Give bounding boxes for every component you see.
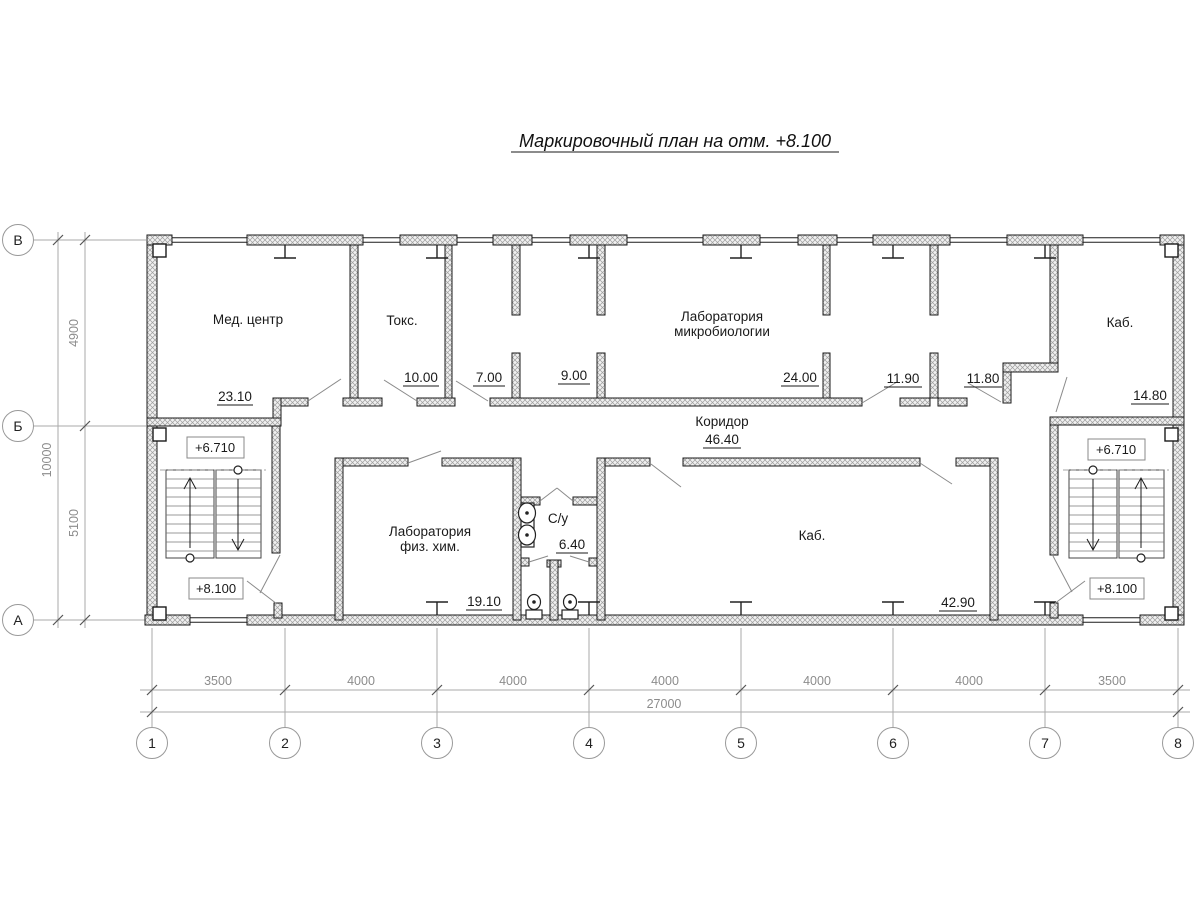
stairwell-left-door-stub <box>274 603 282 618</box>
elevation-value: +6.710 <box>1096 442 1136 457</box>
sink-icon <box>519 525 536 545</box>
exterior-walls <box>145 235 1184 625</box>
room-label-su: С/у <box>548 511 569 526</box>
dim-bay-3: 4000 <box>499 674 527 688</box>
wall-jog-horizontal <box>1003 363 1058 372</box>
room-label-toks: Токс. <box>386 313 417 328</box>
stairwell-right-door-stub <box>1050 603 1058 618</box>
room-label-med-center: Мед. центр <box>213 312 283 327</box>
axis-bubble-1: 1 <box>137 728 168 759</box>
corridor-south-wall <box>335 458 997 466</box>
wall-room7-room9 <box>512 353 520 398</box>
sink-icon <box>519 503 536 523</box>
room-area-11-80: 11.80 <box>967 371 1000 386</box>
axis-label-b: Б <box>13 418 22 434</box>
wall-jog-vertical <box>1003 372 1011 403</box>
stair-landing-node <box>1137 554 1145 562</box>
dim-bay-6: 4000 <box>955 674 983 688</box>
dim-vertical-total: 10000 <box>40 443 54 478</box>
room-area-kab-bottom: 42.90 <box>941 595 975 610</box>
axis-label-6: 6 <box>889 735 897 751</box>
axis-bubble-7: 7 <box>1030 728 1061 759</box>
elevation-value: +8.100 <box>196 581 236 596</box>
axis-label-7: 7 <box>1041 735 1049 751</box>
room-label-kab-top: Каб. <box>1107 315 1134 330</box>
room-label-kab-bottom: Каб. <box>799 528 826 543</box>
corner-notch <box>153 607 166 620</box>
axis-label-2: 2 <box>281 735 289 751</box>
axis-bubble-v: В <box>3 225 34 256</box>
plan-title-text: Маркировочный план на отм. +8.100 <box>519 131 831 151</box>
stairwell-right-west-wall <box>1050 425 1058 555</box>
room-area-lab-fizhim: 19.10 <box>467 594 501 609</box>
axis-label-5: 5 <box>737 735 745 751</box>
column-marks <box>274 245 1056 615</box>
axis-bubble-5: 5 <box>726 728 757 759</box>
corner-notch <box>1165 607 1178 620</box>
elevation-mark-right-upper: +6.710 <box>1088 439 1145 460</box>
door-swings <box>247 377 1085 604</box>
room-area-lab-micro: 24.00 <box>783 370 817 385</box>
room-label-lab-micro-1: Лаборатория <box>681 309 763 324</box>
axis-bubble-4: 4 <box>574 728 605 759</box>
stair-landing-node <box>186 554 194 562</box>
axis-label-v: В <box>13 232 22 248</box>
room-label-lab-fizhim-2: физ. хим. <box>400 539 460 554</box>
wall-toks-room7 <box>445 245 452 398</box>
axis-bubble-8: 8 <box>1163 728 1194 759</box>
row-axes: В Б А <box>3 225 147 636</box>
dim-vertical-4900: 4900 <box>67 319 81 347</box>
axis-label-8: 8 <box>1174 735 1182 751</box>
room-area-11-90: 11.90 <box>887 371 920 386</box>
axis-label-3: 3 <box>433 735 441 751</box>
dim-bay-7: 3500 <box>1098 674 1126 688</box>
elevation-value: +8.100 <box>1097 581 1137 596</box>
wall-1190-1180 <box>930 353 938 398</box>
room-area-kab-top: 14.80 <box>1133 388 1167 403</box>
stair-landing-node <box>1089 466 1097 474</box>
dim-bay-5: 4000 <box>803 674 831 688</box>
floor-plan-drawing: Маркировочный план на отм. +8.100 В Б А … <box>0 0 1200 900</box>
stairwell-left-north-wall <box>147 418 281 426</box>
wall-med-toks <box>350 245 358 398</box>
room-label-corridor: Коридор <box>695 414 748 429</box>
su-stall-stub-east <box>589 558 597 566</box>
axis-bubble-2: 2 <box>270 728 301 759</box>
wall-fizhim-west <box>335 458 343 620</box>
elevation-mark-left-lower: +8.100 <box>189 578 243 599</box>
wall-kab-top-west <box>1050 245 1058 372</box>
stair-landing-node <box>234 466 242 474</box>
room-area-toks: 10.00 <box>404 370 438 385</box>
stairwell-right-north-wall <box>1050 417 1184 425</box>
wall-room9-lab <box>597 353 605 398</box>
axis-bubble-3: 3 <box>422 728 453 759</box>
elevation-mark-left-upper: +6.710 <box>187 437 244 458</box>
room-area-7: 7.00 <box>476 370 502 385</box>
axis-label-4: 4 <box>585 735 593 751</box>
elevation-marks: +6.710 +8.100 +6.710 +8.100 <box>187 437 1145 599</box>
su-partition <box>550 560 558 620</box>
staircase-right <box>1063 466 1169 562</box>
dim-bay-4: 4000 <box>651 674 679 688</box>
axis-bubble-a: А <box>3 605 34 636</box>
room-area-su: 6.40 <box>559 537 585 552</box>
dim-bay-2: 4000 <box>347 674 375 688</box>
col-axes: 1 2 3 4 5 6 7 8 <box>137 728 1194 759</box>
wall-lab-1190 <box>823 353 830 398</box>
staircase-left <box>160 466 266 562</box>
room-label-lab-micro-2: микробиологии <box>674 324 770 339</box>
dim-vertical-5100: 5100 <box>67 509 81 537</box>
dim-bay-1: 3500 <box>204 674 232 688</box>
axis-label-1: 1 <box>148 735 156 751</box>
toilet-icon <box>562 595 578 620</box>
wall-kab-bottom-east <box>990 458 998 620</box>
axis-label-a: А <box>13 612 23 628</box>
dim-total-width: 27000 <box>647 697 682 711</box>
room-area-corridor: 46.40 <box>705 432 739 447</box>
corner-notch <box>153 244 166 257</box>
stairwell-left-east-wall <box>272 426 280 553</box>
corner-notch <box>153 428 166 441</box>
su-north-stub-east <box>573 497 597 505</box>
elevation-value: +6.710 <box>195 440 235 455</box>
wall-su-east <box>597 458 605 620</box>
toilet-icon <box>526 595 542 620</box>
corner-notch <box>1165 428 1178 441</box>
bottom-dimension-lines: 3500 4000 4000 4000 4000 4000 3500 27000 <box>140 628 1190 727</box>
corner-notch <box>1165 244 1178 257</box>
left-dimension-lines: 4900 5100 10000 <box>40 232 90 628</box>
room-area-9: 9.00 <box>561 368 587 383</box>
plan-title: Маркировочный план на отм. +8.100 <box>511 131 839 152</box>
axis-bubble-b: Б <box>3 411 34 442</box>
interior-walls <box>147 245 1184 620</box>
su-stall-stub-west <box>521 558 529 566</box>
axis-bubble-6: 6 <box>878 728 909 759</box>
elevation-mark-right-lower: +8.100 <box>1090 578 1144 599</box>
room-area-med-center: 23.10 <box>218 389 252 404</box>
room-label-lab-fizhim-1: Лаборатория <box>389 524 471 539</box>
